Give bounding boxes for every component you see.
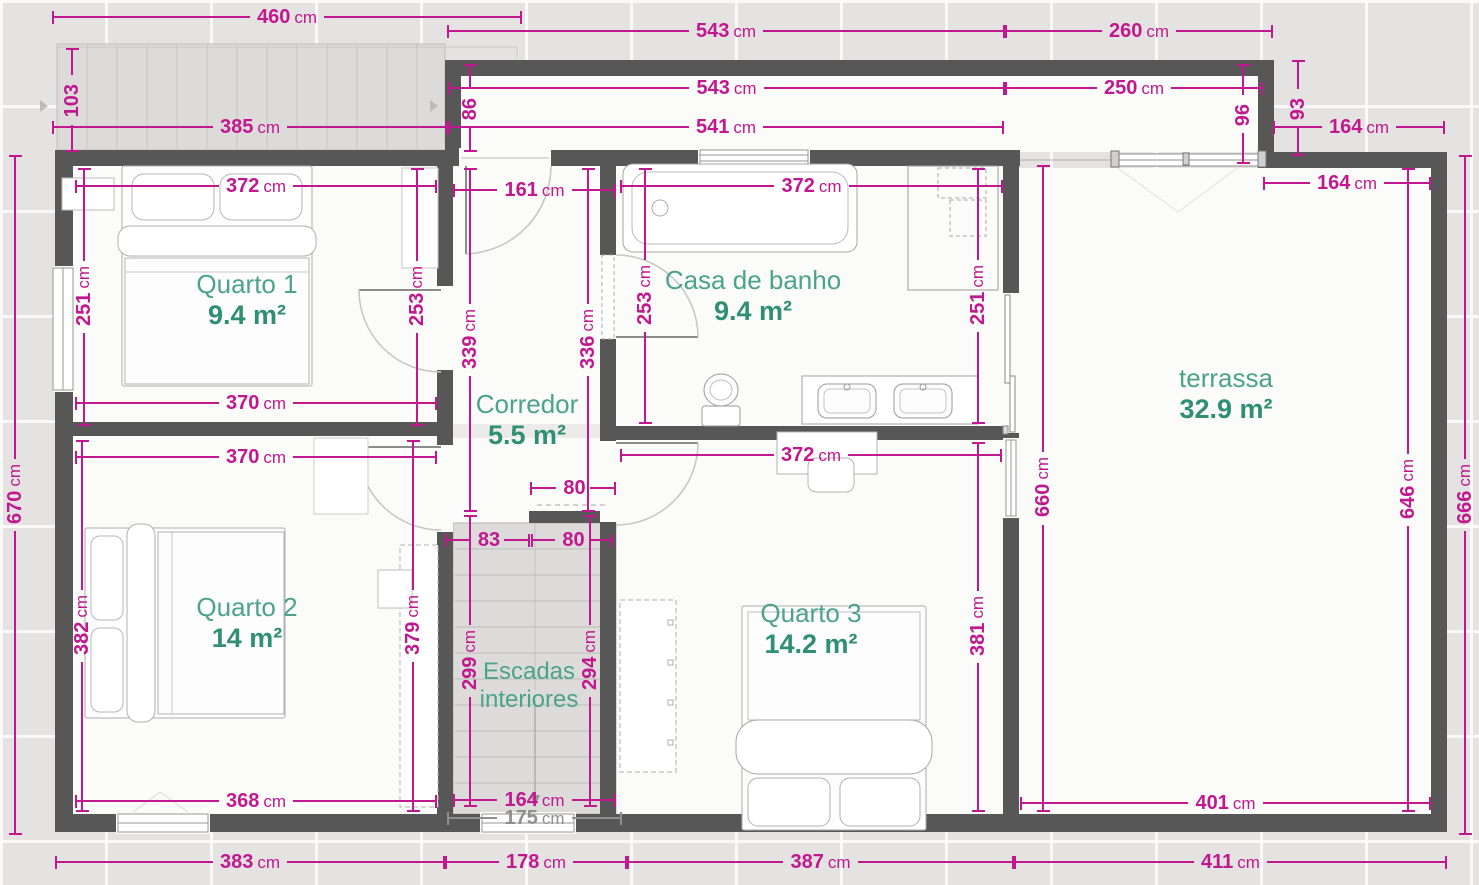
dim-96: 96 [1234,64,1252,164]
room-label-quarto2[interactable]: Quarto 2 14 m² [147,593,347,654]
room-name: Quarto 1 [147,270,347,300]
dim-339cm: 339cm [461,168,479,512]
dim-383cm: 383cm [55,853,445,871]
dim-372cm-2: 372cm [620,177,1003,195]
dim-260cm: 260cm [1005,22,1273,40]
dim-80-2: 80 [531,531,613,549]
dim-666cm: 666cm [1456,155,1474,835]
dim-401cm: 401cm [1020,794,1431,812]
dim-368cm: 368cm [75,792,437,810]
window-quarto3-terrace [1006,440,1016,516]
dim-543cm-2: 543cm [448,79,1005,97]
dim-251cm: 251cm [75,168,93,426]
room-label-terrassa[interactable]: terrassa 32.9 m² [1126,364,1326,425]
dim-382cm: 382cm [73,440,91,812]
dim-372cm: 372cm [75,177,437,195]
dim-660cm: 660cm [1034,165,1052,812]
room-name: Quarto 3 [711,599,911,629]
room-label-quarto1[interactable]: Quarto 1 9.4 m² [147,270,347,331]
room-area: 9.4 m² [628,296,878,327]
dim-336cm: 336cm [579,168,597,512]
dim-251cm-2: 251cm [969,168,987,424]
dim-385cm: 385cm [52,118,448,136]
dim-372cm-3: 372cm [620,446,1002,464]
dim-93: 93 [1289,60,1307,156]
dim-83: 83 [445,531,530,549]
room-area: 32.9 m² [1126,394,1326,425]
floor-plan-canvas[interactable]: 460cm 543cm 260cm 543cm 250cm 385cm 541c… [0,0,1479,885]
dim-299cm: 299cm [461,515,479,807]
dim-411cm: 411cm [1014,853,1447,871]
dim-178cm: 178cm [445,853,627,871]
dim-294cm: 294cm [581,515,599,807]
dim-370cm-2: 370cm [75,448,437,466]
dim-250cm: 250cm [1005,79,1263,97]
room-name: terrassa [1126,364,1326,394]
dim-370cm: 370cm [75,394,437,412]
room-label-casa-de-banho[interactable]: Casa de banho 9.4 m² [628,266,878,327]
room-area: 14.2 m² [711,629,911,660]
room-name: Quarto 2 [147,593,347,623]
dim-387cm: 387cm [627,853,1014,871]
sliding-door[interactable] [1003,295,1015,434]
room-area: 14 m² [147,623,347,654]
dim-646cm: 646cm [1399,168,1417,812]
dim-86: 86 [461,64,479,152]
window-quarto1 [53,268,73,390]
terrace-floor [1019,168,1431,814]
dim-541cm: 541cm [448,118,1004,136]
dim-253cm: 253cm [408,168,426,426]
room-name: Casa de banho [628,266,878,296]
dim-670cm: 670cm [6,155,24,835]
dim-543cm: 543cm [447,22,1005,40]
dim-175cm-gray: 175cm [447,809,622,827]
dim-80: 80 [530,479,616,497]
dim-103: 103 [63,48,81,152]
room-area: 9.4 m² [147,300,347,331]
dim-379cm: 379cm [404,440,422,812]
room-label-quarto3[interactable]: Quarto 3 14.2 m² [711,599,911,660]
dim-381cm: 381cm [969,442,987,812]
dim-253cm-2: 253cm [636,168,654,424]
